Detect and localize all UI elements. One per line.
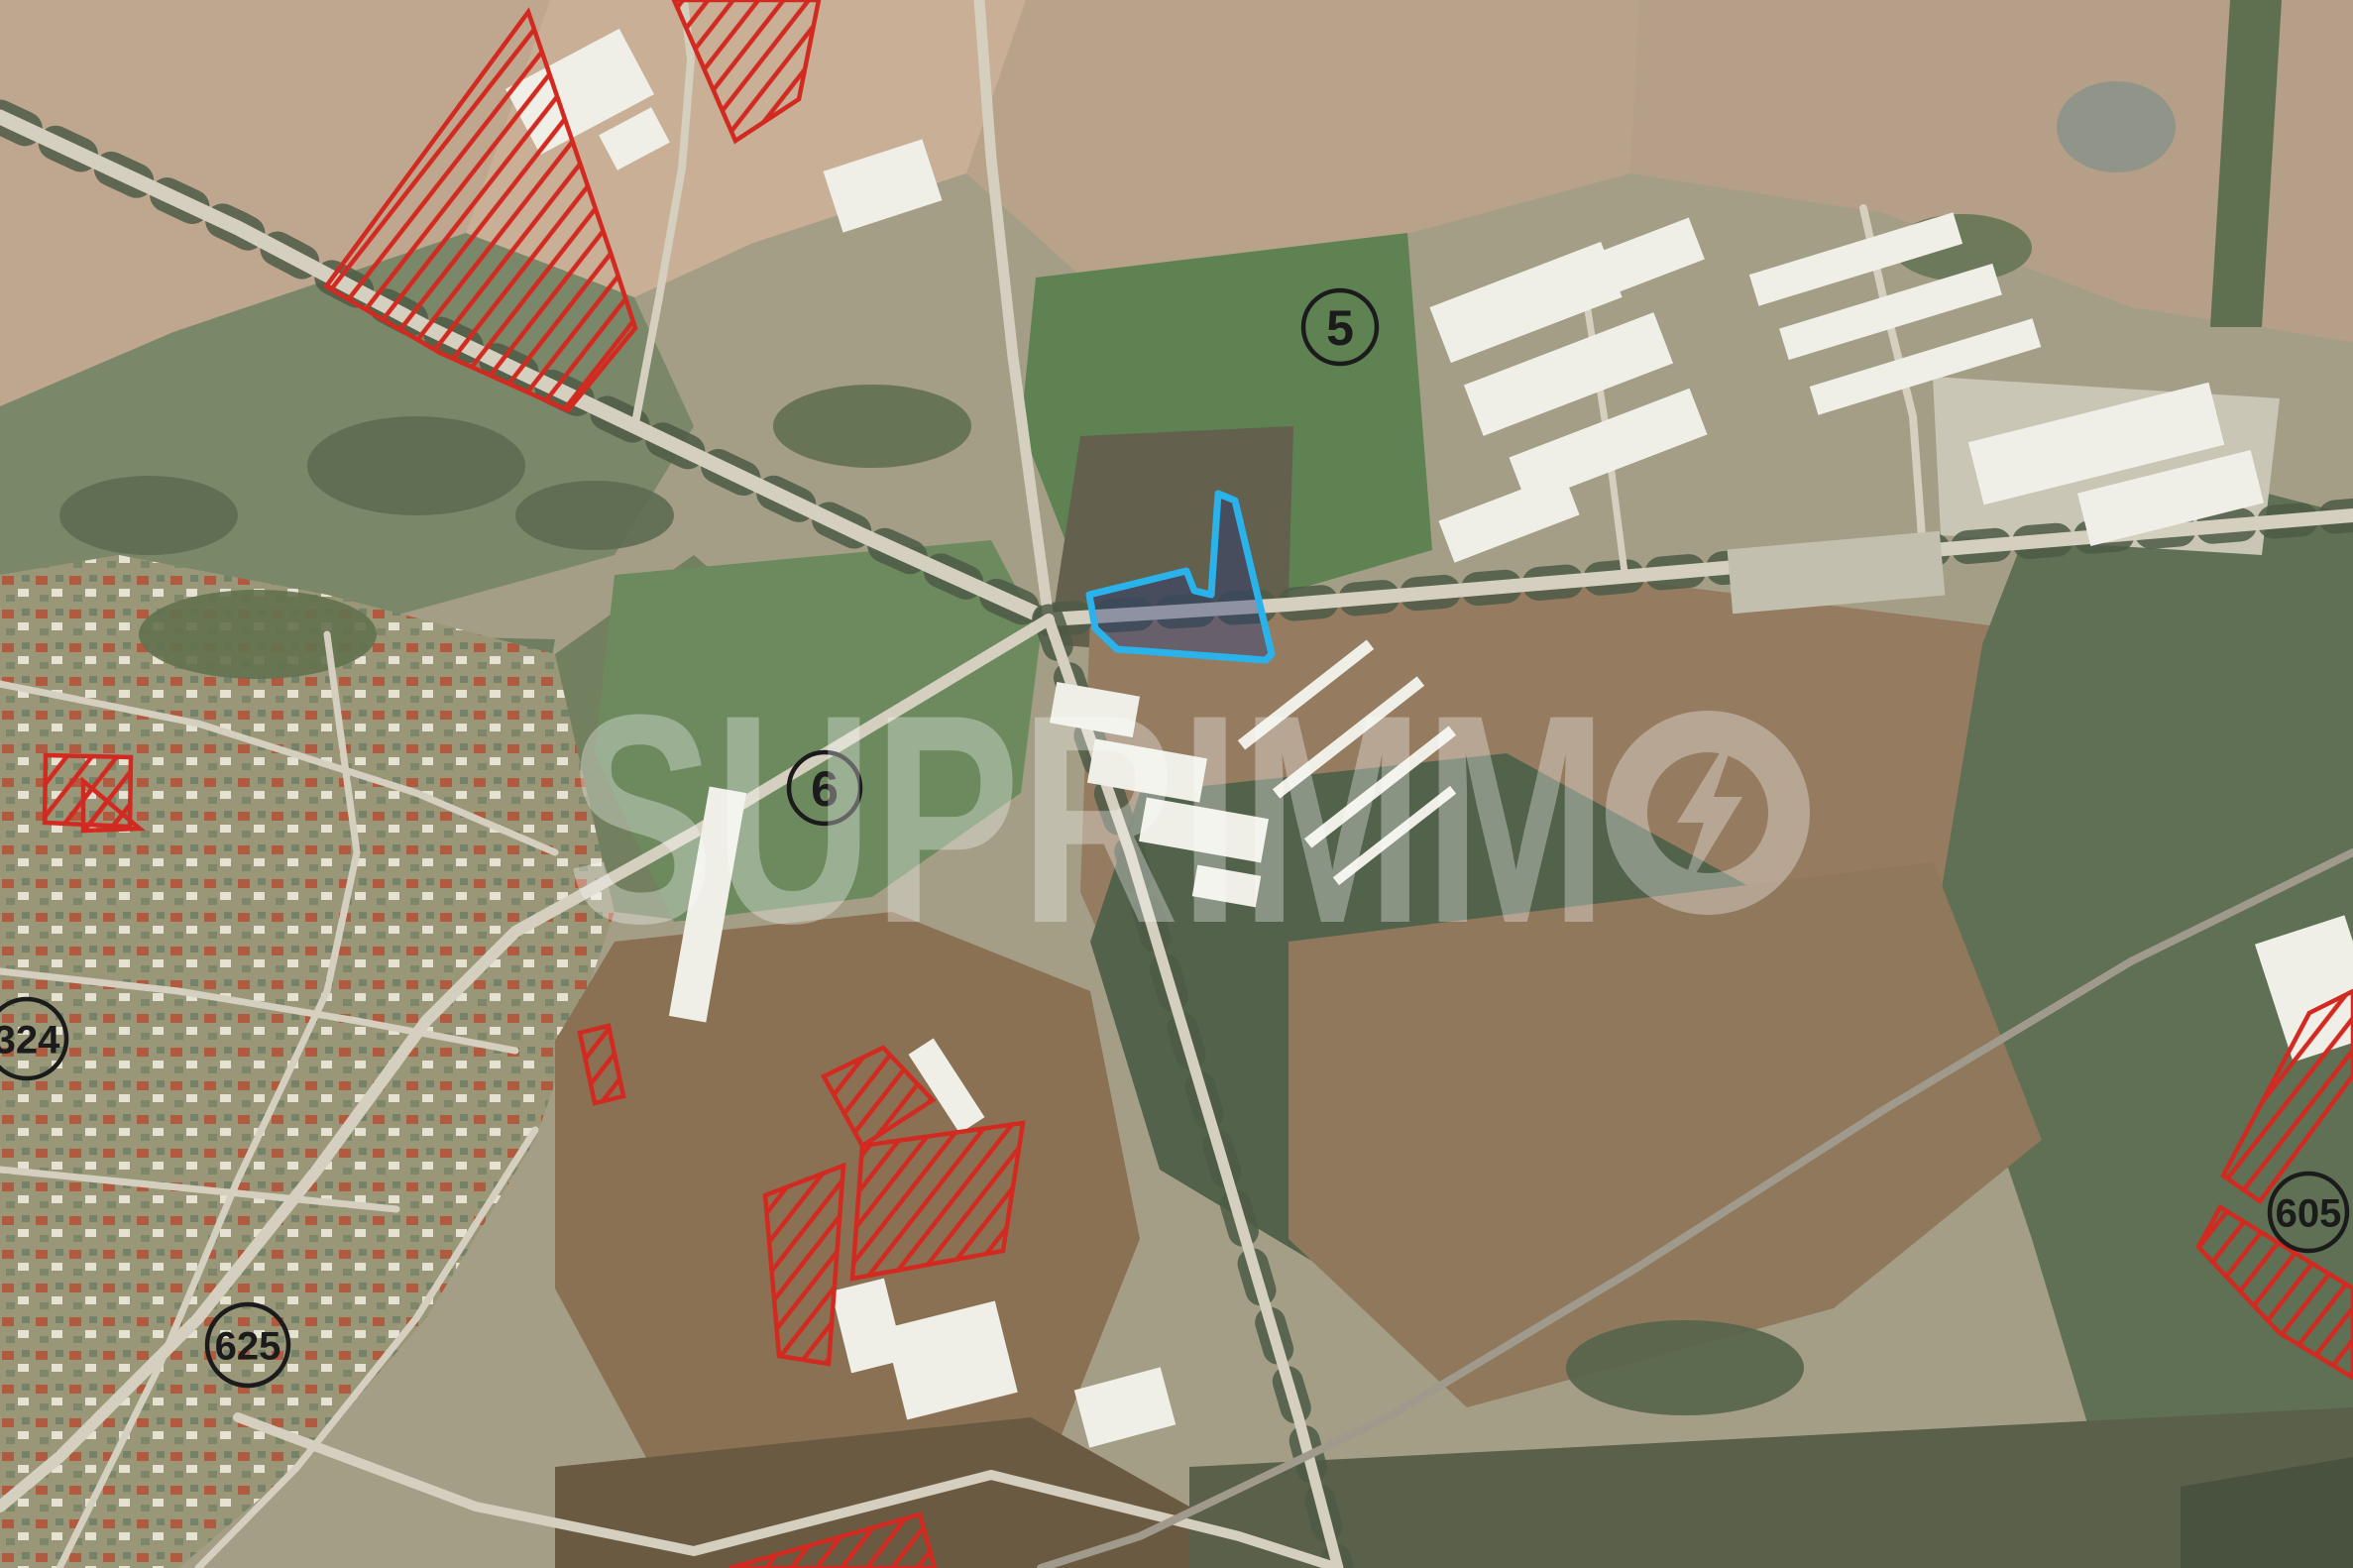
industrial-building [1438, 473, 1579, 562]
tree-grove [59, 476, 238, 555]
industrial-building [1601, 217, 1705, 292]
industrial-building [1074, 1367, 1176, 1447]
tree-grove [139, 590, 377, 679]
parcel-cluster-c [765, 1166, 843, 1364]
industrial-building [1728, 531, 1946, 614]
tree-grove [1566, 1320, 1804, 1415]
satellite-listing-image: 56605625324SUPRIMM [0, 0, 2353, 1568]
watermark-text: SUPRIMM [567, 652, 1608, 985]
zone-marker-label: 5 [1326, 300, 1354, 356]
zone-marker-label: 605 [2276, 1191, 2342, 1235]
zone-marker-label: 625 [215, 1324, 281, 1368]
tree-grove [515, 481, 674, 550]
tree-grove [773, 385, 971, 468]
tree-grove [307, 416, 525, 515]
suprimmo-watermark: SUPRIMM [567, 652, 1789, 985]
tree-grove [2057, 81, 2176, 172]
satellite-map: 56605625324SUPRIMM [0, 0, 2353, 1568]
zone-marker-label: 324 [0, 1018, 60, 1062]
